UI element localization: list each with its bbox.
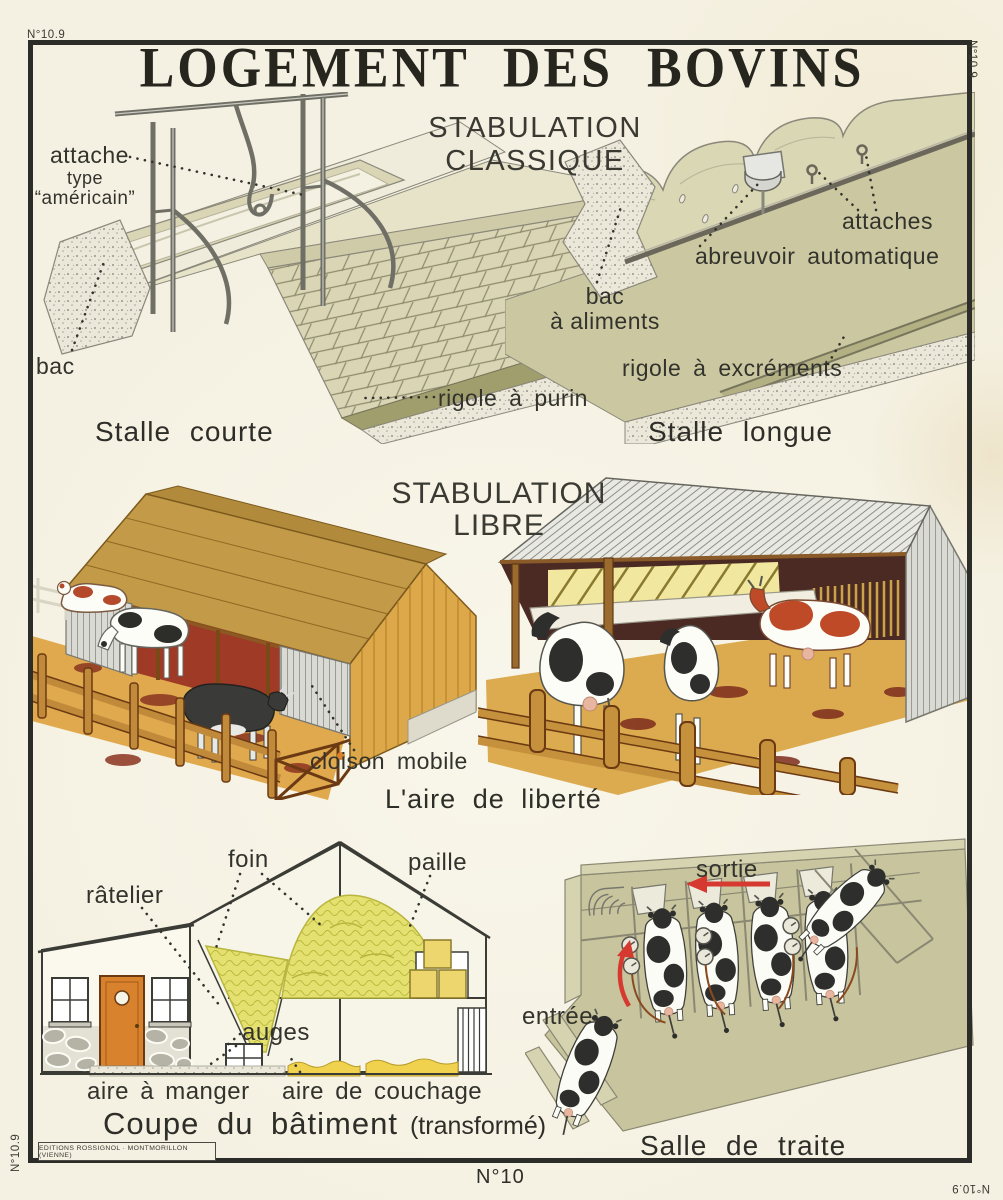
label-attache: attache — [50, 142, 129, 169]
door — [100, 976, 144, 1072]
label-auges: auges — [242, 1019, 310, 1047]
label-attache-type: type — [28, 168, 142, 189]
label-rigole-excrements: rigole à excréments — [622, 355, 842, 382]
caption-coupe-note: (transformé) — [410, 1112, 546, 1140]
sheet-number: N°10 — [476, 1166, 525, 1189]
libre-title-line1: STABULATION — [349, 478, 649, 510]
plate-mark-top-left: N°10.9 — [27, 29, 65, 41]
caption-coupe-main: Coupe du bâtiment — [103, 1106, 398, 1141]
caption-aire-couchage: aire de couchage — [282, 1078, 482, 1106]
post-far-left — [512, 564, 519, 668]
label-bac-aliments-1: bac — [545, 283, 665, 310]
section-title-classique: STABULATION CLASSIQUE — [335, 112, 735, 178]
label-attache-type2: “américain” — [28, 188, 142, 210]
label-bac-aliments-2: à aliments — [545, 308, 665, 335]
caption-stalle-longue: Stalle longue — [648, 416, 833, 448]
section-title-libre: STABULATION LIBRE — [349, 478, 649, 542]
label-paille: paille — [408, 849, 467, 877]
publisher-imprint: EDITIONS ROSSIGNOL · MONTMORILLON (VIENN… — [38, 1142, 216, 1161]
libre-title-line2: LIBRE — [349, 510, 649, 542]
slatted-wall — [458, 1008, 486, 1072]
label-sortie: sortie — [696, 856, 758, 884]
label-abreuvoir: abreuvoir automatique — [695, 243, 939, 270]
label-attaches: attaches — [842, 208, 933, 235]
caption-salle-traite: Salle de traite — [640, 1130, 846, 1162]
caption-coupe: Coupe du bâtiment(transformé) — [103, 1106, 546, 1142]
label-foin: foin — [228, 846, 269, 874]
poster-root: LOGEMENT DES BOVINS STABULATION CLASSIQU… — [0, 0, 1003, 1200]
caption-aire-liberte: L'aire de liberté — [385, 784, 602, 815]
plate-mark-left: N°10.9 — [10, 1102, 22, 1172]
label-ratelier: râtelier — [86, 882, 163, 910]
label-rigole-purin: rigole à purin — [438, 385, 588, 412]
label-bac: bac — [36, 353, 75, 380]
plate-mark-right: N°10.9 — [966, 40, 978, 110]
caption-stalle-courte: Stalle courte — [95, 416, 274, 448]
label-cloison-mobile: cloison mobile — [310, 748, 468, 775]
poster-title: LOGEMENT DES BOVINS — [30, 36, 974, 101]
plate-mark-bottom-right: N°10.9 — [930, 1182, 990, 1194]
caption-aire-manger: aire à manger — [87, 1078, 250, 1106]
label-entree: entrée — [522, 1003, 593, 1031]
right-wall-corrugated — [906, 506, 970, 722]
